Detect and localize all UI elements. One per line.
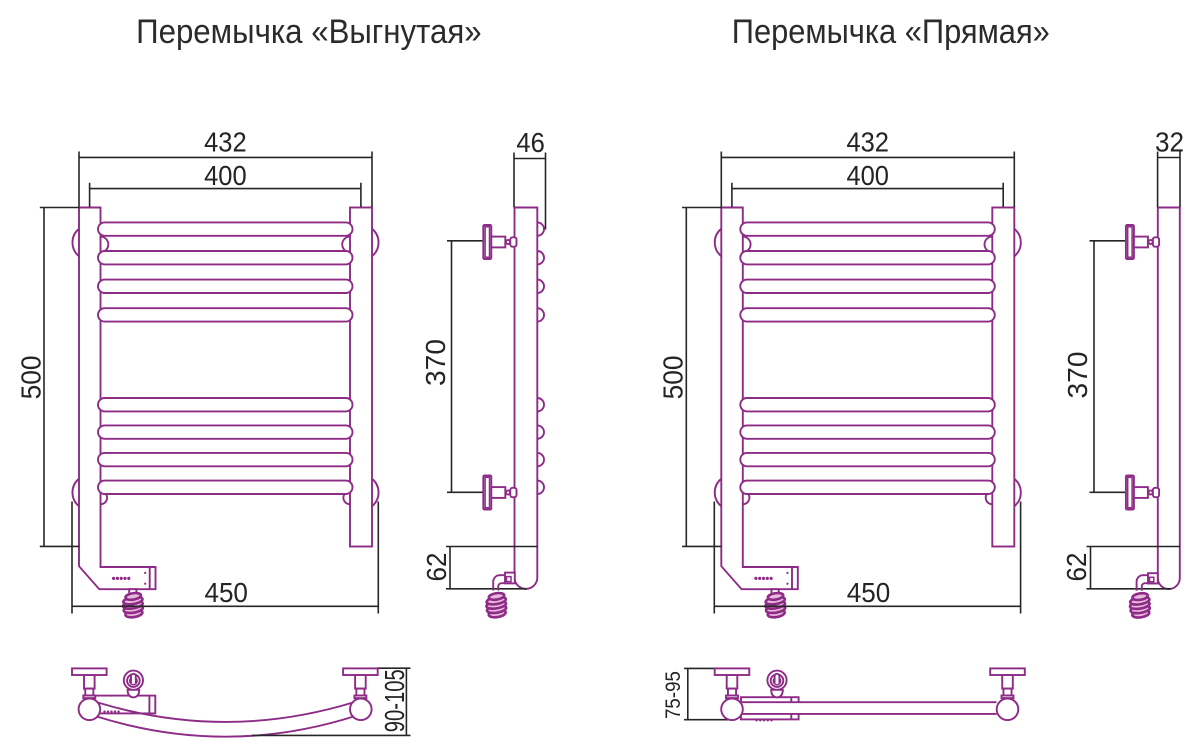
svg-text:Перемычка «Прямая»: Перемычка «Прямая» <box>732 13 1050 51</box>
svg-text:Перемычка «Выгнутая»: Перемычка «Выгнутая» <box>136 13 482 51</box>
svg-text:46: 46 <box>516 127 544 158</box>
svg-text:62: 62 <box>421 553 452 582</box>
svg-text:370: 370 <box>1062 352 1093 399</box>
svg-text:90-105: 90-105 <box>379 669 410 732</box>
svg-text:370: 370 <box>420 339 451 386</box>
svg-text:62: 62 <box>1061 553 1092 582</box>
svg-text:32: 32 <box>1155 127 1184 158</box>
svg-text:75-95: 75-95 <box>662 671 685 719</box>
